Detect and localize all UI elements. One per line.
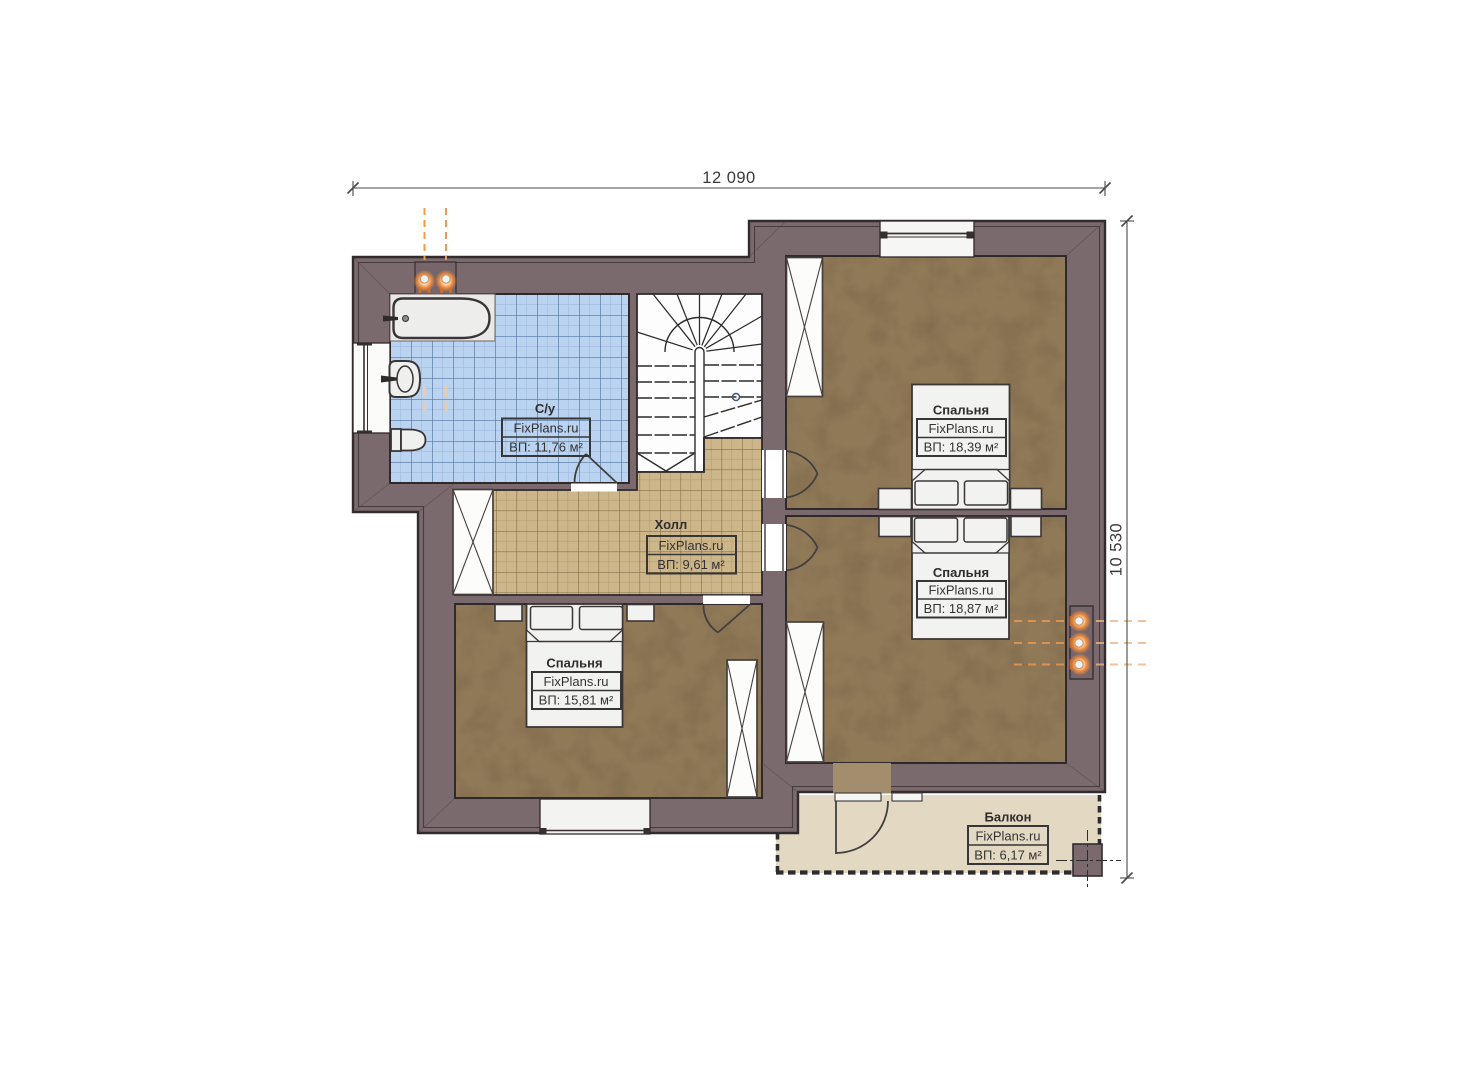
svg-text:С/у: С/у	[535, 401, 556, 416]
svg-text:FixPlans.ru: FixPlans.ru	[543, 674, 608, 689]
svg-text:Спальня: Спальня	[933, 403, 989, 418]
svg-text:Спальня: Спальня	[546, 656, 602, 671]
svg-text:10 530: 10 530	[1108, 523, 1126, 576]
svg-text:ВП: 15,81 м²: ВП: 15,81 м²	[539, 693, 614, 708]
svg-text:Холл: Холл	[655, 517, 688, 532]
svg-text:ВП: 18,87 м²: ВП: 18,87 м²	[924, 601, 999, 616]
svg-text:ВП: 6,17 м²: ВП: 6,17 м²	[974, 848, 1042, 863]
svg-text:ВП: 18,39 м²: ВП: 18,39 м²	[924, 440, 999, 455]
svg-text:Спальня: Спальня	[933, 565, 989, 580]
svg-text:Балкон: Балкон	[985, 810, 1032, 825]
svg-text:ВП: 11,76 м²: ВП: 11,76 м²	[509, 440, 583, 455]
svg-text:ВП: 9,61 м²: ВП: 9,61 м²	[657, 557, 725, 572]
svg-text:FixPlans.ru: FixPlans.ru	[513, 421, 578, 436]
svg-text:FixPlans.ru: FixPlans.ru	[975, 829, 1040, 844]
svg-text:FixPlans.ru: FixPlans.ru	[928, 421, 993, 436]
svg-text:12 090: 12 090	[702, 169, 755, 187]
svg-text:FixPlans.ru: FixPlans.ru	[658, 538, 723, 553]
svg-text:FixPlans.ru: FixPlans.ru	[928, 583, 993, 598]
